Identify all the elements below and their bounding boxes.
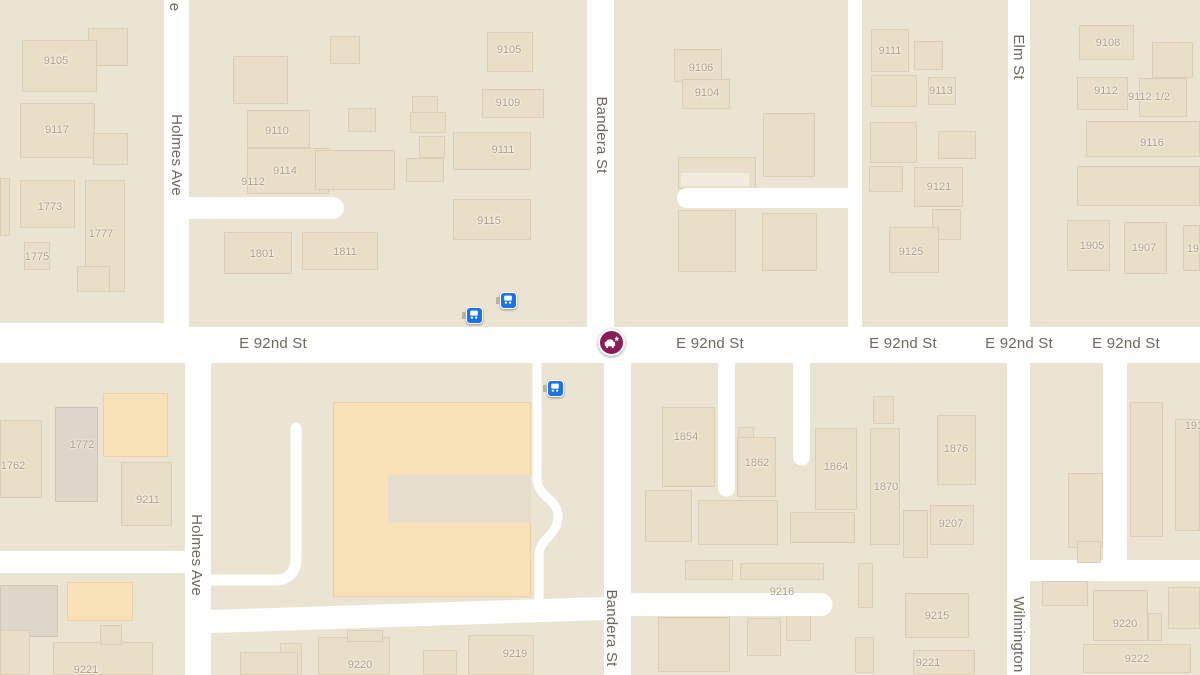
house-number-label: 9221 bbox=[46, 664, 126, 675]
house-number-label: 9121 bbox=[899, 181, 979, 194]
house-number-label: 9220 bbox=[320, 659, 400, 672]
building bbox=[77, 266, 110, 292]
building bbox=[762, 213, 817, 271]
building bbox=[1093, 590, 1148, 641]
street-name-label: Wilmington Av bbox=[1009, 545, 1027, 675]
house-number-label: 9111 bbox=[850, 45, 930, 58]
building bbox=[315, 150, 395, 190]
building bbox=[658, 617, 730, 672]
house-number-label: 9215 bbox=[897, 610, 977, 623]
building bbox=[406, 158, 444, 182]
house-number-label: 9115 bbox=[449, 215, 529, 228]
building bbox=[685, 560, 733, 580]
house-number-label: 1811 bbox=[305, 246, 385, 259]
building bbox=[348, 108, 376, 132]
house-number-label: 191 bbox=[1154, 420, 1200, 433]
building bbox=[240, 652, 298, 675]
house-number-label: 1870 bbox=[846, 481, 926, 494]
house-number-label: 9216 bbox=[742, 586, 822, 599]
street-name-label: E 92nd St bbox=[610, 335, 810, 353]
building bbox=[0, 178, 10, 236]
building bbox=[347, 630, 383, 642]
building bbox=[0, 630, 30, 675]
bus-stop-pole bbox=[462, 312, 466, 319]
building bbox=[698, 500, 778, 545]
house-number-label: 9220 bbox=[1085, 618, 1165, 631]
house-number-label: 9108 bbox=[1068, 37, 1148, 50]
bus-glyph bbox=[467, 308, 481, 322]
building-courtyard bbox=[388, 475, 531, 523]
building bbox=[410, 112, 446, 133]
bus-glyph bbox=[548, 381, 562, 395]
bus-stop-icon[interactable] bbox=[466, 307, 483, 324]
house-number-label: 1876 bbox=[916, 443, 996, 456]
house-number-label: 9110 bbox=[237, 125, 317, 138]
building bbox=[1077, 166, 1200, 206]
building bbox=[763, 113, 815, 177]
house-number-label: 9105 bbox=[16, 55, 96, 68]
house-number-label: 9116 bbox=[1112, 137, 1192, 150]
house-number-label: 9109 bbox=[468, 97, 548, 110]
building bbox=[680, 172, 750, 187]
bus-stop-icon[interactable] bbox=[500, 292, 517, 309]
building bbox=[330, 36, 360, 64]
building bbox=[419, 136, 445, 158]
street-name-label: Bandera St bbox=[592, 35, 610, 235]
house-number-label: 9106 bbox=[661, 62, 741, 75]
house-number-label: 1762 bbox=[0, 460, 53, 473]
house-number-label: 9125 bbox=[871, 246, 951, 259]
building bbox=[858, 563, 873, 608]
house-number-label: 9104 bbox=[667, 87, 747, 100]
bus-stop-pole bbox=[543, 385, 547, 392]
building bbox=[645, 490, 692, 542]
bus-stop-icon[interactable] bbox=[547, 380, 564, 397]
house-number-label: 9207 bbox=[911, 518, 991, 531]
building bbox=[1068, 473, 1103, 548]
building bbox=[1042, 581, 1088, 606]
street-name-label: Holmes Ave bbox=[167, 55, 185, 255]
building bbox=[938, 131, 976, 159]
house-number-label: 1864 bbox=[796, 461, 876, 474]
house-number-label: 1862 bbox=[717, 457, 797, 470]
street-name-label: Bandera St bbox=[602, 528, 620, 675]
crash-incident-icon[interactable] bbox=[598, 329, 625, 356]
building bbox=[870, 122, 917, 163]
house-number-label: 1777 bbox=[61, 228, 141, 241]
building bbox=[55, 407, 98, 502]
house-number-label: 9105 bbox=[469, 44, 549, 57]
house-number-label: 9113 bbox=[901, 85, 981, 98]
map-canvas[interactable]: eHolmes AveBandera StElm StE 92nd StE 92… bbox=[0, 0, 1200, 675]
house-number-label: 9117 bbox=[17, 124, 97, 137]
street-name-label: Elm St bbox=[1009, 0, 1027, 157]
house-number-label: 1775 bbox=[0, 251, 77, 264]
street-name-label: E 92nd St bbox=[1026, 335, 1200, 353]
house-number-label: 9222 bbox=[1097, 653, 1177, 666]
building bbox=[100, 625, 122, 645]
building bbox=[869, 166, 903, 192]
building bbox=[1175, 419, 1200, 531]
crash-car-glyph bbox=[601, 332, 622, 353]
building bbox=[0, 420, 42, 498]
house-number-label: 9114 bbox=[245, 165, 325, 178]
building bbox=[233, 56, 288, 104]
bus-stop-pole bbox=[496, 297, 500, 304]
house-number-label: 1772 bbox=[42, 439, 122, 452]
street-name-label: Holmes Ave bbox=[187, 455, 205, 655]
building bbox=[1077, 541, 1101, 563]
house-number-label: 191 bbox=[1156, 243, 1200, 256]
building bbox=[740, 563, 824, 580]
building bbox=[93, 133, 128, 165]
house-number-label: 9221 bbox=[888, 657, 968, 670]
house-number-label: 1773 bbox=[10, 201, 90, 214]
building bbox=[678, 210, 736, 272]
house-number-label: 1801 bbox=[222, 248, 302, 261]
building bbox=[855, 637, 874, 673]
building bbox=[1168, 587, 1200, 629]
building bbox=[747, 618, 781, 656]
bus-glyph bbox=[501, 293, 515, 307]
building-highlighted bbox=[67, 582, 133, 621]
building bbox=[786, 612, 811, 641]
house-number-label: 1854 bbox=[646, 431, 726, 444]
building bbox=[662, 407, 715, 487]
street-name-label: E 92nd St bbox=[173, 335, 373, 353]
building bbox=[873, 396, 894, 424]
house-number-label: 9211 bbox=[108, 494, 188, 507]
house-number-label: 9219 bbox=[475, 648, 555, 661]
house-number-label: 9112 1/2 bbox=[1109, 91, 1189, 104]
house-number-label: 9111 bbox=[463, 144, 543, 157]
building bbox=[1152, 42, 1193, 78]
building bbox=[790, 512, 855, 543]
building bbox=[423, 650, 457, 675]
